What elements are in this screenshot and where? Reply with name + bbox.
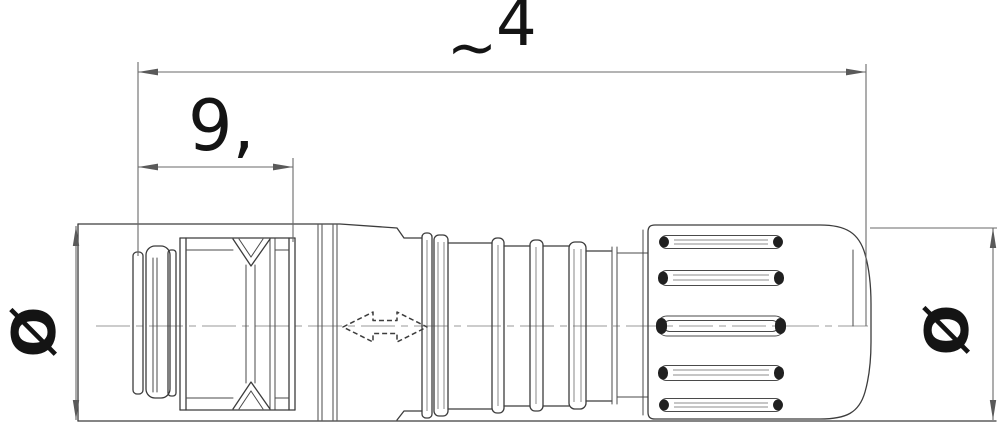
dimension-front-length: 9, — [138, 85, 293, 242]
grip-slot — [658, 271, 784, 286]
overall-length-approx-symbol: ~ — [447, 13, 497, 83]
coupling-nut — [180, 238, 295, 410]
arrow-right-icon — [846, 69, 866, 76]
front-length-value: 9, — [188, 85, 255, 167]
overall-length-value: 4 — [496, 0, 537, 61]
grip-slot — [658, 366, 784, 381]
arrow-up-icon — [990, 228, 996, 248]
arrow-down-icon — [990, 400, 996, 420]
arrow-right-icon — [273, 164, 293, 171]
o-ring-grooves — [133, 246, 176, 398]
rear-diameter-symbol: Ø — [909, 304, 979, 355]
grip-slots — [656, 236, 786, 412]
front-diameter-symbol: Ø — [0, 306, 66, 357]
dimension-front-diameter: Ø — [0, 226, 79, 420]
knurl-notch-top — [233, 239, 270, 266]
connector-drawing — [78, 224, 996, 421]
technical-drawing-canvas: ~ 4 9, Ø Ø — [0, 0, 1000, 427]
connector-technical-drawing: ~ 4 9, Ø Ø — [0, 0, 1000, 427]
front-shell — [78, 224, 996, 421]
knurl-notch-bottom — [233, 382, 270, 409]
arrow-left-icon — [138, 69, 158, 76]
double-headed-arrow-icon — [343, 312, 427, 342]
arrow-left-icon — [138, 164, 158, 171]
dimension-rear-diameter: Ø — [870, 228, 997, 420]
rear-grip — [643, 225, 871, 419]
grip-slot — [659, 236, 783, 249]
grip-slot — [659, 399, 783, 412]
